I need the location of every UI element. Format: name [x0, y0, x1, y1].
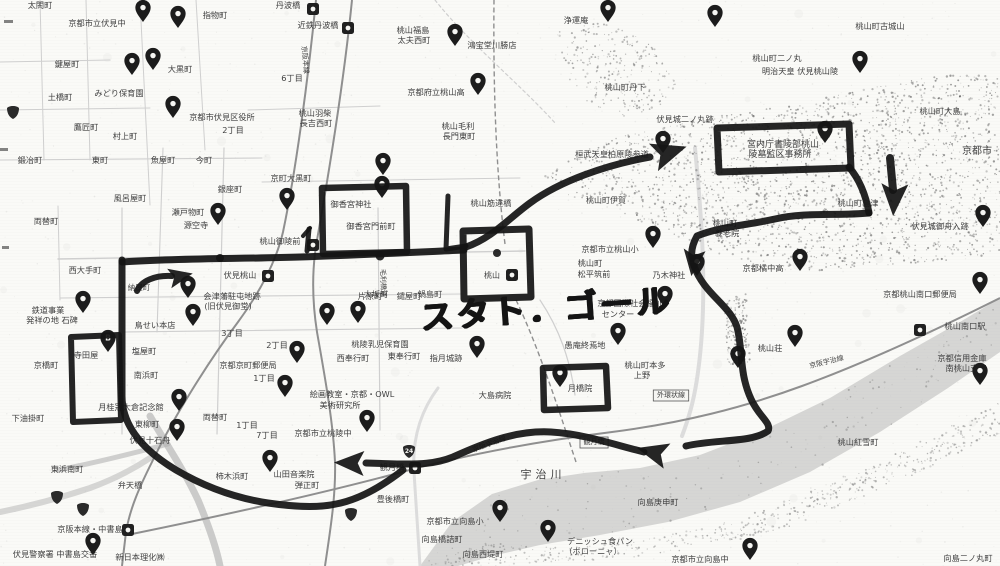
map-label: 指月城跡 [430, 353, 463, 363]
map-label: 桃山南口駅 [945, 321, 986, 331]
map-label: 西大手町 [69, 265, 102, 275]
scanned-route-map: 太閤町京都市立伏見中指物町鍵屋町大黒町みどり保育園土橋町京都市伏見区役所2丁目鷹… [0, 0, 1000, 566]
map-label: 長門東町 [443, 131, 476, 141]
map-label: 東奉行町 [388, 351, 421, 361]
map-label: 京都信用金庫 [937, 353, 986, 363]
hand-drawn-arrow-icon [334, 450, 365, 476]
map-label: 下油掛町 [12, 413, 45, 423]
map-pin-icon [742, 538, 757, 560]
map-label: 京都市立桃山小 [581, 244, 638, 254]
map-label: 弾正町 [295, 480, 320, 490]
map-label: 風呂屋町 [114, 193, 147, 203]
hand-drawn-route-line [890, 158, 893, 190]
map-label: 向島二ノ丸町 [943, 553, 992, 563]
map-label: 大島病院 [479, 390, 512, 400]
map-label: 桃山荘 [758, 343, 783, 353]
map-pin-icon [185, 304, 200, 326]
map-label: 2丁目 [222, 125, 244, 135]
map-label: 桃山町島津 [838, 198, 879, 208]
map-pin-icon [645, 226, 660, 248]
map-label: 太夫西町 [398, 35, 431, 45]
railway-line [122, 0, 316, 566]
map-label: 1丁目 [253, 373, 275, 383]
station-icon [914, 324, 926, 336]
map-label: 鍛冶町 [18, 155, 43, 165]
map-label: 京都市立向島小 [426, 516, 483, 526]
map-label: みどり保育園 [94, 88, 143, 98]
map-label: 今町 [196, 155, 212, 165]
map-label: 土橋町 [48, 92, 73, 102]
road-line [40, 0, 44, 160]
map-label: 長吉西町 [300, 118, 333, 128]
map-label: 京町大黒町 [271, 173, 312, 183]
map-label: 会津藩駐屯地跡 [203, 291, 260, 301]
map-label: 7丁目 [256, 430, 278, 440]
map-pin-icon [600, 0, 615, 22]
map-label: 発祥の地 石碑 [26, 315, 78, 325]
map-label: 御香宮門前町 [346, 221, 395, 231]
map-label: 両替町 [203, 412, 228, 422]
map-label: 陵墓監区事務所 [748, 148, 811, 160]
map-label: 向島橋詰町 [422, 534, 463, 544]
map-label: 桃山御陵前 [260, 236, 301, 246]
map-label: 桃山福島 [397, 25, 430, 35]
map-pin-icon [75, 291, 90, 313]
map-label: 外環状線 [657, 390, 685, 399]
map-pin-icon [277, 375, 292, 397]
map-pin-icon [972, 272, 987, 294]
map-label: 近鉄丹波橋 [298, 20, 339, 30]
hand-drawn-route-line [122, 250, 464, 262]
map-label: 月橋院 [568, 383, 593, 393]
map-label: 京阪宇治線 [808, 353, 844, 370]
map-pin-icon [972, 363, 987, 385]
map-label: 桃山町大島 [920, 106, 961, 116]
map-label: （ボローニャ） [564, 546, 621, 556]
map-label: 伏見城二ノ丸跡 [656, 114, 713, 124]
map-label: 桃山町伊賀 [586, 195, 626, 205]
map-pin-icon [470, 73, 485, 95]
map-label: 東浜南町 [51, 464, 84, 474]
map-pin-icon [135, 0, 150, 22]
road-line [58, 206, 60, 300]
map-label: 桃山町本多 [625, 360, 666, 370]
map-pin-icon [852, 51, 867, 73]
map-label: 指物町 [203, 10, 228, 20]
map-label: 柿木浜町 [216, 471, 249, 481]
map-label: 京都府立桃山高 [407, 87, 464, 97]
uji-river [420, 298, 1000, 566]
hand-drawn-blob [493, 249, 501, 257]
map-label: 太閤町 [28, 0, 53, 10]
hand-drawn-blob [216, 254, 224, 262]
map-pin-icon [210, 203, 225, 225]
map-label: 京都市立向島中 [671, 554, 728, 564]
map-label: 京都市 [962, 144, 992, 157]
map-label: 鷹匠町 [74, 122, 99, 132]
map-label: 鍵屋町 [55, 59, 80, 69]
map-label: 新日本理化㈱ [115, 552, 164, 562]
canal-horikawa [0, 416, 220, 566]
box-gokonomiya-shrine [322, 186, 407, 254]
map-label: 村上町 [113, 131, 138, 141]
map-pin-icon [319, 303, 334, 325]
hand-drawn-blob [376, 252, 385, 261]
map-label: 銀座町 [218, 184, 243, 194]
road-line [157, 148, 163, 332]
map-pin-icon [289, 341, 304, 363]
map-label: 京都市立桃陵中 [294, 428, 351, 438]
map-pin-icon [787, 325, 802, 347]
map-label: 桃山町 [578, 258, 603, 268]
map-pin-icon [171, 389, 186, 411]
map-label: 桃山町二ノ丸 [752, 53, 802, 63]
route-shield-icon [345, 508, 357, 521]
route-shield-icon [7, 106, 19, 119]
map-pin-icon [124, 53, 139, 75]
map-label: 京阪本線・中書島 [57, 524, 123, 534]
map-label: 両替町 [34, 216, 59, 226]
map-label: 桃山羽柴 [299, 108, 332, 118]
map-label: 伏見警察署 中書島交番 [13, 549, 97, 559]
map-label: 源空寺 [184, 220, 209, 230]
map-label: 浄運庵 [564, 15, 589, 25]
map-label: 塩屋町 [132, 346, 157, 356]
station-icon [122, 524, 134, 536]
map-label: 丹波橋 [276, 0, 301, 10]
map-label: 愚庵終焉地 [565, 340, 606, 350]
map-label: 2丁目 [266, 340, 288, 350]
map-label: 鉄道事業 [32, 305, 65, 315]
map-label: デニッシュ食パン [567, 536, 633, 546]
station-icon [262, 270, 274, 282]
map-label: 瀬戸物町 [172, 207, 205, 217]
map-pin-icon [469, 336, 484, 358]
map-label: 豊後橋町 [377, 494, 410, 504]
map-label: 南浜町 [134, 370, 159, 380]
map-pin-icon [610, 323, 625, 345]
map-label: 6丁目 [281, 73, 303, 83]
station-icon [506, 269, 518, 281]
map-label: 弁天橋 [118, 480, 143, 490]
svg-text:24: 24 [405, 448, 413, 455]
map-label: 絵画教室・京都・OWL [310, 389, 395, 399]
map-label: 京都橘中高 [743, 263, 784, 273]
station-icon [307, 3, 319, 15]
map-label: 大黒町 [168, 64, 193, 74]
map-label: 大坂町 [364, 289, 389, 299]
station-icon [342, 22, 354, 34]
map-label: 西奉行町 [337, 353, 370, 363]
map-label: 鳥せい本店 [135, 320, 176, 330]
map-label: 美術研究所 [320, 400, 361, 410]
map-pin-icon [975, 205, 990, 227]
map-label: 桃山町丹下 [605, 82, 646, 92]
map-label: 桃山 [484, 270, 500, 280]
map-label: 魚屋町 [151, 155, 176, 165]
map-canvas: 太閤町京都市立伏見中指物町鍵屋町大黒町みどり保育園土橋町京都市伏見区役所2丁目鷹… [0, 0, 1000, 566]
map-label: 桃山町古城山 [855, 21, 904, 31]
road-line [0, 108, 150, 110]
map-pin-icon [359, 410, 374, 432]
map-label: 上野 [634, 370, 650, 380]
map-label: 京阪本線 [300, 45, 311, 74]
map-label: 宇治川 [521, 467, 566, 481]
map-label: 向島西堤町 [463, 549, 504, 559]
map-label: 京都市立伏見中 [68, 18, 125, 28]
map-label: 宮内庁書陵部桃山 [747, 138, 819, 150]
map-label: 1丁目 [236, 420, 258, 430]
map-label: 御香宮神社 [331, 199, 372, 209]
map-label: 京都市伏見区役所 [189, 112, 255, 122]
map-pin-icon [165, 96, 180, 118]
map-label: 向島庚申町 [638, 497, 679, 507]
map-pin-icon [145, 48, 160, 70]
map-label: 京都京町郵便局 [219, 360, 276, 370]
scan-edge-mark [0, 148, 8, 151]
map-label: 東町 [92, 155, 108, 165]
map-label: 山田音楽院 [274, 469, 315, 479]
road-line [196, 0, 205, 150]
uji-river-body [420, 298, 1000, 566]
map-label: (旧伏見御堂) [204, 301, 251, 311]
map-label: 桃山筋違橋 [471, 198, 512, 208]
map-label: 3丁目 [221, 328, 243, 338]
map-label: 東柳町 [135, 419, 160, 429]
scan-edge-mark [4, 20, 13, 23]
map-pin-icon [170, 6, 185, 28]
map-label: 伏見城御舟入跡 [911, 221, 968, 231]
scan-edge-mark [2, 246, 9, 249]
road-line [140, 0, 150, 205]
map-pin-icon [707, 5, 722, 27]
map-label: 京橋町 [34, 360, 59, 370]
map-label: 京都桃山南口郵便局 [883, 289, 957, 299]
map-label: 鴻宝堂川勝店 [467, 40, 516, 50]
map-pin-icon [279, 188, 294, 210]
map-label: 明治天皇 伏見桃山陵 [762, 66, 838, 76]
map-label: 月桂冠大倉記念館 [98, 402, 164, 412]
map-pin-icon [375, 153, 390, 175]
route-shield-icon [77, 503, 89, 516]
map-pin-icon [350, 301, 365, 323]
map-label: 伏見桃山 [224, 270, 257, 280]
map-label: 寺田屋 [74, 350, 99, 360]
map-label: 桃陵乳児保育園 [351, 339, 408, 349]
map-pin-icon [169, 419, 184, 441]
map-label: 桃山紅雪町 [838, 437, 879, 447]
map-pin-icon [447, 24, 462, 46]
map-label: 桃山毛利 [442, 121, 475, 131]
